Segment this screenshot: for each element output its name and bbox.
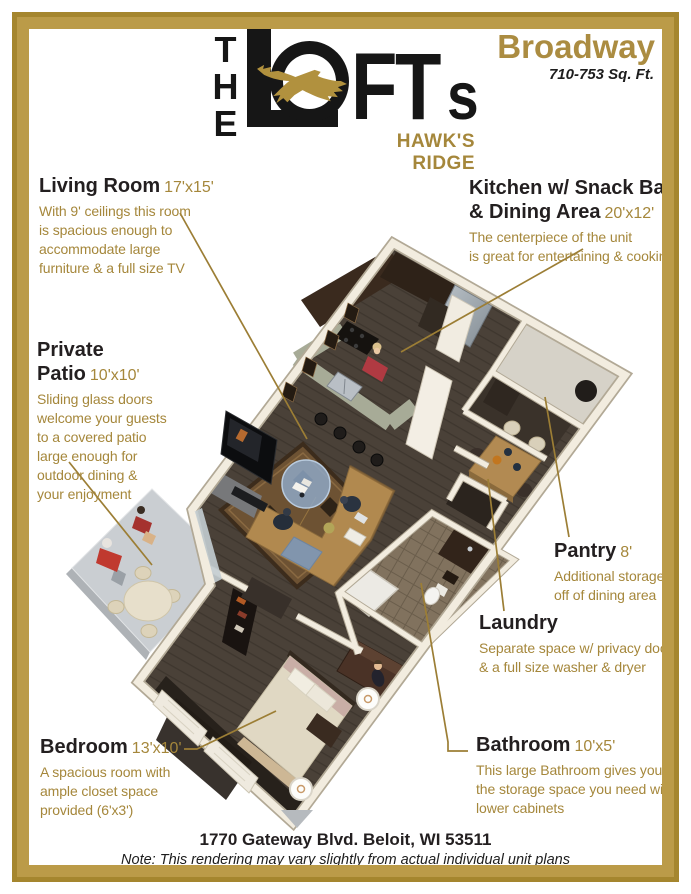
bathroom-description: This large Bathroom gives you all the st… — [476, 761, 686, 818]
living-room-dims: 17'x15' — [164, 179, 214, 196]
kitchen-dims: 20'x12' — [605, 205, 655, 222]
annotation-private-patio: Private Patio10'x10' Sliding glass doors… — [37, 339, 207, 504]
annotation-kitchen: Kitchen w/ Snack Bar & Dining Area20'x12… — [469, 177, 679, 266]
bedroom-dims: 13'x10' — [132, 740, 182, 757]
laundry-description: Separate space w/ privacy doors & a full… — [479, 639, 684, 677]
annotation-bedroom: Bedroom13'x10' A spacious room with ampl… — [40, 736, 215, 820]
annotation-pantry: Pantry8' Additional storage off of dinin… — [554, 540, 684, 605]
living-room-title: Living Room — [39, 175, 160, 197]
kitchen-title-line1: Kitchen w/ Snack Bar — [469, 177, 672, 199]
annotation-living-room: Living Room17'x15' With 9' ceilings this… — [39, 175, 224, 278]
bedroom-description: A spacious room with ample closet space … — [40, 763, 215, 820]
bedroom-title: Bedroom — [40, 736, 128, 758]
pantry-dims: 8' — [620, 544, 632, 561]
annotation-bathroom: Bathroom10'x5' This large Bathroom gives… — [476, 734, 686, 818]
bathroom-dims: 10'x5' — [574, 738, 615, 755]
address: 1770 Gateway Blvd. Beloit, WI 53511 — [0, 830, 691, 850]
bathroom-title: Bathroom — [476, 734, 570, 756]
pantry-title: Pantry — [554, 540, 616, 562]
annotation-laundry: Laundry Separate space w/ privacy doors … — [479, 612, 684, 677]
kitchen-description: The centerpiece of the unit is great for… — [469, 228, 679, 266]
floorplan-flyer-page: THE L O FT s HAWK'S RIDGE Broadway 710-7… — [0, 0, 691, 894]
kitchen-title-line2: & Dining Area — [469, 201, 601, 223]
private-patio-dims: 10'x10' — [90, 367, 140, 384]
disclaimer-note: Note: This rendering may vary slightly f… — [0, 852, 691, 868]
pantry-description: Additional storage off of dining area — [554, 567, 684, 605]
living-room-description: With 9' ceilings this room is spacious e… — [39, 202, 224, 278]
private-patio-description: Sliding glass doors welcome your guests … — [37, 390, 207, 504]
laundry-title: Laundry — [479, 612, 558, 634]
